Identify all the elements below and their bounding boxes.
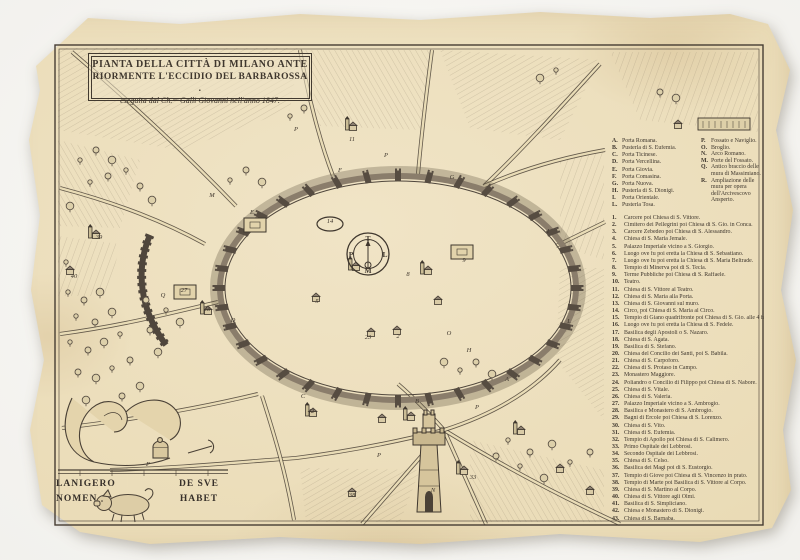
tower-merlon (399, 406, 401, 408)
building-roof (517, 426, 525, 430)
tree (554, 68, 558, 72)
map-label: 28 (204, 306, 211, 313)
legend-gate-entry: Q.Antico braccio delle mura di Massimian… (701, 164, 763, 177)
tree (92, 319, 98, 325)
legend-label: Chiesa di S. Protaso in Campo. (624, 365, 764, 372)
hatched-field (305, 50, 430, 130)
tower-merlon (395, 406, 397, 408)
legend-site-entry: 26.Chiesa di S. Valeria. (612, 394, 764, 401)
tree (119, 393, 125, 399)
legend-key: H. (612, 188, 622, 195)
legend-key: 38. (612, 480, 624, 487)
motto-right: DE SVE HABET (162, 477, 236, 507)
legend-label: Chiesa di S. Eufemia. (624, 430, 764, 437)
legend-label: Luogo ove fu poi eretta la Chiesa di S. … (624, 258, 764, 265)
legend-key: 19. (612, 344, 624, 351)
tree (75, 369, 81, 375)
legend-label: Antico braccio delle mura di Massimiano. (711, 164, 763, 177)
legend-key: L. (612, 202, 622, 209)
legend-key: 5. (612, 244, 624, 251)
legend-key: 39. (612, 487, 624, 494)
legend-site-entry: 5.Palazzo Imperiale vicino a S. Giorgio. (612, 244, 764, 251)
legend-key: 28. (612, 408, 624, 415)
tree (258, 178, 266, 186)
map-label: H (466, 347, 472, 354)
legend-site-entry: 41.Basilica di S. Simpliciano. (612, 501, 764, 508)
tree (88, 180, 92, 184)
map-label: L (566, 318, 571, 325)
farm-building (698, 118, 750, 130)
legend-key: 3. (612, 229, 624, 236)
legend-site-entry: 25.Chiesa di S. Vitale. (612, 387, 764, 394)
tree (540, 474, 548, 482)
legend-key: 2. (612, 222, 624, 229)
church-tower (404, 409, 408, 420)
tree (506, 438, 510, 442)
photo-backdrop: T M P L (0, 0, 800, 560)
tree (473, 359, 479, 365)
church-tower (89, 227, 93, 238)
legend-label: Porta Romana. (622, 138, 702, 145)
building-roof (92, 230, 100, 234)
legend-key: 30. (612, 423, 624, 430)
legend-key: 41. (612, 501, 624, 508)
legend-key: 23. (612, 372, 624, 379)
tree (110, 366, 114, 370)
church-tower (457, 463, 461, 474)
hatched-field (58, 140, 140, 228)
legend-key: F. (612, 174, 622, 181)
tree (587, 449, 593, 455)
wall-tower (215, 285, 226, 291)
legend-site-entry: 8.Tempio di Minerva poi di S. Tecla. (612, 265, 764, 272)
map-label: 40 (71, 273, 78, 280)
legend-label: Porte del Fossato. (711, 158, 763, 165)
tree (137, 183, 143, 189)
motto-left: LANIGERO NOMEN (56, 477, 142, 507)
tree (518, 464, 522, 468)
map-title-line2: RIORMENTE L'ECCIDIO DEL BARBAROSSA . (92, 71, 309, 95)
building-house (557, 468, 564, 473)
legend-label: Basilica di S. Stefano. (624, 344, 764, 351)
legend-key: 32. (612, 437, 624, 444)
building-roof (393, 326, 401, 330)
map-label: A (504, 376, 509, 383)
tree (100, 338, 108, 346)
legend-key: 10. (612, 279, 624, 286)
legend-key: 7. (612, 258, 624, 265)
legend-gate-entry: L.Pusterla Tosa. (612, 202, 702, 209)
legend-site-entry: 21.Chiesa di S. Carpoforo. (612, 358, 764, 365)
legend-label: Porta Comasina. (622, 174, 702, 181)
legend-gates-column1: A.Porta Romana.B.Pusterla di S. Eufemia.… (612, 138, 702, 210)
tree (136, 382, 144, 390)
legend-label: Luogo ove fu poi eretta la Chiesa di S. … (624, 251, 764, 258)
tree (74, 314, 78, 318)
legend-label: Teatro. (624, 279, 764, 286)
title-cartouche-inner: PIANTA DELLA CITTÀ DI MILANO ANTE RIORME… (91, 56, 310, 99)
motto-left-line2: NOMEN (56, 492, 142, 507)
building-roof (367, 328, 375, 332)
wall-tower (568, 265, 580, 272)
legend-label: Chiesa di S. Maria Jemale. (624, 236, 764, 243)
tree (127, 357, 133, 363)
legend-label: Arco Romano. (711, 151, 763, 158)
legend-site-entry: 13.Chiesa di S. Giovanni sul muro. (612, 301, 764, 308)
legend-site-entry: 2.Cimitero dei Pellegrini poi Chiesa di … (612, 222, 764, 229)
legend-label: Chiesa di S. Maria alla Porta. (624, 294, 764, 301)
tree (458, 368, 462, 372)
building-house (461, 470, 468, 475)
building-house (350, 126, 357, 131)
legend-label: Tempio di Apollo poi Chiesa di S. Calime… (624, 437, 764, 444)
legend-key: 6. (612, 251, 624, 258)
map-label: P (145, 461, 150, 468)
legend-label: Tempio di Minerva poi di S. Tecla. (624, 265, 764, 272)
legend-site-entry: 40.Chiesa di S. Vittore agli Olmi. (612, 494, 764, 501)
map-label: M (208, 192, 215, 199)
legend-gate-entry: B.Pusterla di S. Eufemia. (612, 145, 702, 152)
map-label: 11 (349, 136, 355, 143)
map-label: 27 (181, 287, 188, 294)
building-roof (424, 266, 432, 270)
legend-label: Fossato e Naviglio. (711, 138, 763, 145)
legend-gate-entry: N.Arco Romano. (701, 151, 763, 158)
legend-gate-entry: M.Porte del Fossato. (701, 158, 763, 165)
map-label: 8 (406, 271, 410, 278)
tower-merlon (215, 269, 217, 271)
map-label: E (249, 209, 254, 216)
legend-gate-entry: G.Porta Nuova. (612, 181, 702, 188)
map-title-line1: PIANTA DELLA CITTÀ DI MILANO ANTE (92, 59, 309, 71)
motto-right-line2: HABET (162, 492, 236, 507)
tower-merlon (582, 285, 584, 287)
legend-key: 27. (612, 401, 624, 408)
tree (154, 348, 162, 356)
tree (147, 327, 153, 333)
legend-key: Q. (701, 164, 711, 177)
legend-label: Luogo ove fu poi eretta la Chiesa di S. … (624, 322, 764, 329)
map-label: P (474, 404, 479, 411)
tower-merlon (213, 289, 215, 291)
legend-key: O. (701, 145, 711, 152)
title-cartouche: PIANTA DELLA CITTÀ DI MILANO ANTE RIORME… (88, 53, 312, 101)
legend-gate-entry: O.Broglio. (701, 145, 763, 152)
legend-label: Chiesa di S. Celso. (624, 458, 764, 465)
church-spire (513, 420, 518, 423)
church-tower (421, 263, 425, 274)
tree (164, 308, 168, 312)
tree (488, 370, 496, 378)
legend-site-entry: 11.Chiesa di S. Vittore al Teatro. (612, 287, 764, 294)
legend-site-entry: 6.Luogo ove fu poi eretta la Chiesa di S… (612, 251, 764, 258)
wall-tower (571, 285, 582, 291)
tree (288, 114, 292, 118)
legend-site-entry: 43.Chiesa di S. Barnaba. (612, 516, 764, 523)
legend-label: Secondo Ospitale dei Lebbrosi. (624, 451, 764, 458)
tree (143, 297, 149, 303)
legend-key: 33. (612, 444, 624, 451)
tree (657, 89, 663, 95)
legend-site-entry: 14.Circo, poi Chiesa di S. Maria al Circ… (612, 308, 764, 315)
tree (148, 196, 156, 204)
legend-label: Broglio. (711, 145, 763, 152)
legend-label: Primo Ospitale dei Lebbrosi. (624, 444, 764, 451)
legend-label: Chiesa di S. Carpoforo. (624, 358, 764, 365)
legend-key: 36. (612, 465, 624, 472)
building-house (587, 490, 594, 495)
walled-court (244, 218, 266, 232)
legend-key: E. (612, 167, 622, 174)
legend-key: M. (701, 158, 711, 165)
map-title-line3: eseguita dal Ch.ᵐᵒ Galli Giovanni nell'a… (92, 95, 309, 106)
map-label: O (447, 330, 452, 337)
wall-tower (395, 171, 401, 182)
tower-merlon (215, 265, 217, 267)
tree (548, 440, 556, 448)
tower-merlon (213, 285, 215, 287)
legend-label: Chiesa di S. Vitale. (624, 387, 764, 394)
wall-band (220, 176, 576, 400)
legend-label: Basilica di S. Simpliciano. (624, 501, 764, 508)
legend-label: Circo, poi Chiesa di S. Maria al Circo. (624, 308, 764, 315)
city-wall-ring (213, 169, 584, 408)
tree (568, 460, 572, 464)
legend-label: Ampliazione delle mura per opera dell'Ar… (711, 178, 763, 204)
legend-gate-entry: D.Porta Vercellina. (612, 159, 702, 166)
tree (92, 374, 100, 382)
tower-merlon (215, 309, 217, 311)
building-house (379, 418, 386, 423)
hatched-field (58, 236, 120, 296)
legend-site-entry: 30.Chiesa di S. Vito. (612, 423, 764, 430)
legend-site-entry: 37.Tempio di Giove poi Chiesa di S. Vinc… (612, 473, 764, 480)
legend-site-entry: 10.Teatro. (612, 279, 764, 286)
compass-west-label: P (349, 250, 354, 259)
legend-key: 37. (612, 473, 624, 480)
map-label: P (376, 452, 381, 459)
legend-site-entry: 29.Bagni di Ercole poi Chiesa di S. Lore… (612, 415, 764, 422)
legend-key: 12. (612, 294, 624, 301)
tree (66, 290, 70, 294)
building-house (425, 270, 432, 275)
building-house (518, 430, 525, 435)
legend-site-entry: 3.Carcere Zebedeo poi Chiesa di S. Aless… (612, 229, 764, 236)
tree (176, 318, 184, 326)
legend-site-entry: 9.Terme Pubbliche poi Chiesa di S. Raffa… (612, 272, 764, 279)
legend-label: Chiesa di S. Agata. (624, 337, 764, 344)
building-roof (312, 293, 320, 297)
legend-site-entry: 33.Primo Ospitale dei Lebbrosi. (612, 444, 764, 451)
legend-site-entry: 27.Palazzo Imperiale vicino a S. Ambrogi… (612, 401, 764, 408)
legend-label: Chiesa di S. Vittore al Teatro. (624, 287, 764, 294)
legend-site-entry: 20.Chiesa del Concilio dei Santi, poi S.… (612, 351, 764, 358)
legend-label: Carcere Zebedeo poi Chiesa di S. Alessan… (624, 229, 764, 236)
legend-key: G. (612, 181, 622, 188)
legend-label: Monastero Maggiore. (624, 372, 764, 379)
tree (228, 178, 232, 182)
tree (108, 308, 116, 316)
tree (536, 74, 544, 82)
motto-right-line1: DE SVE (162, 477, 236, 492)
legend-sites-list: 1.Carcere poi Chiesa di S. Vittore.2.Cim… (612, 215, 764, 523)
church-spire (305, 402, 310, 405)
legend-label: Chiesa di S. Giovanni sul muro. (624, 301, 764, 308)
legend-site-entry: 16.Luogo ove fu poi eretta la Chiesa di … (612, 322, 764, 329)
legend-gate-entry: H.Pusterla di S. Dionigi. (612, 188, 702, 195)
legend-gate-entry: F.Porta Comasina. (612, 174, 702, 181)
legend-key: 17. (612, 330, 624, 337)
legend-site-entry: 39.Chiesa di S. Martino al Corpo. (612, 487, 764, 494)
legend-label: Chiesa del Concilio dei Santi, poi S. Ba… (624, 351, 764, 358)
legend-key: 42. (612, 508, 624, 515)
legend-key: 22. (612, 365, 624, 372)
wall-tower (217, 304, 229, 311)
legend-key: 1. (612, 215, 624, 222)
legend-gate-entry: R.Ampliazione delle mura per opera dell'… (701, 178, 763, 204)
legend-label: Palazzo Imperiale vicino a S. Ambrogio. (624, 401, 764, 408)
legend-key: 8. (612, 265, 624, 272)
legend-key: R. (701, 178, 711, 204)
legend-site-entry: 15.Tempio di Giano quadrifronte poi Chie… (612, 315, 764, 322)
tree (672, 94, 680, 102)
map-label: B (415, 398, 419, 405)
legend-key: 14. (612, 308, 624, 315)
tree (124, 168, 128, 172)
tree (108, 156, 116, 164)
motto-left-line1: LANIGERO (56, 477, 142, 492)
tower-merlon (578, 309, 580, 311)
legend-key: 26. (612, 394, 624, 401)
legend-key: 4. (612, 236, 624, 243)
legend-site-entry: 23.Monastero Maggiore. (612, 372, 764, 379)
church-tower (514, 423, 518, 434)
legend-site-entry: 19.Basilica di S. Stefano. (612, 344, 764, 351)
hatched-field (440, 50, 600, 140)
legend-key: 40. (612, 494, 624, 501)
legend-label: Porta Orientale. (622, 195, 702, 202)
legend-site-entry: 22.Chiesa di S. Protaso in Campo. (612, 365, 764, 372)
map-label: 33 (469, 474, 477, 481)
tree (64, 260, 68, 264)
legend-site-entry: 36.Basilica dei Magi poi di S. Eustorgio… (612, 465, 764, 472)
legend-key: 18. (612, 337, 624, 344)
legend-key: 13. (612, 301, 624, 308)
legend-site-entry: 4.Chiesa di S. Maria Jemale. (612, 236, 764, 243)
map-label: N (430, 487, 436, 494)
legend-key: 21. (612, 358, 624, 365)
legend-label: Palazzo Imperiale vicino a S. Giorgio. (624, 244, 764, 251)
legend-label: Tempio di Giove poi Chiesa di S. Vincenz… (624, 473, 764, 480)
legend-key: 35. (612, 458, 624, 465)
legend-label: Chiesa di S. Barnaba. (624, 516, 764, 523)
church-spire (200, 300, 205, 303)
tree (81, 297, 87, 303)
legend-label: Chiesa di S. Vittore agli Olmi. (624, 494, 764, 501)
legend-key: N. (701, 151, 711, 158)
legend-gate-entry: A.Porta Romana. (612, 138, 702, 145)
legend-gate-entry: E.Porta Giovia. (612, 167, 702, 174)
wall-inner-line (225, 181, 571, 395)
ancient-wall-fragment (142, 235, 166, 345)
legend-label: Porta Nuova. (622, 181, 702, 188)
legend-label: Chiesa di S. Vito. (624, 423, 764, 430)
legend-label: Basilica e Monastero di S. Ambrogio. (624, 408, 764, 415)
legend-site-entry: 34.Secondo Ospitale dei Lebbrosi. (612, 451, 764, 458)
map-label: G (450, 174, 455, 181)
building-house (675, 124, 682, 129)
legend-site-entry: 17.Basilica degli Apostoli o S. Nazaro. (612, 330, 764, 337)
legend-label: Porta Giovia. (622, 167, 702, 174)
legend-key: 34. (612, 451, 624, 458)
tree (93, 147, 99, 153)
legend-site-entry: 24.Poliandro o Concilio di Filippo poi C… (612, 380, 764, 387)
legend-key: C. (612, 152, 622, 159)
legend-key: 24. (612, 380, 624, 387)
map-label: 14 (327, 218, 334, 225)
legend-label: Cimitero dei Pellegrini poi Chiesa di S.… (624, 222, 764, 229)
legend-key: 29. (612, 415, 624, 422)
legend-label: Terme Pubbliche poi Chiesa di S. Raffael… (624, 272, 764, 279)
map-label: 39 (95, 234, 103, 241)
legend-site-entry: 12.Chiesa di S. Maria alla Porta. (612, 294, 764, 301)
legend-key: 25. (612, 387, 624, 394)
legend-label: Carcere poi Chiesa di S. Vittore. (624, 215, 764, 222)
legend-key: B. (612, 145, 622, 152)
legend-key: I. (612, 195, 622, 202)
legend-site-entry: 18.Chiesa di S. Agata. (612, 337, 764, 344)
legend-site-entry: 28.Basilica e Monastero di S. Ambrogio. (612, 408, 764, 415)
legend-key: 31. (612, 430, 624, 437)
church-tower (346, 119, 350, 130)
tree (96, 288, 104, 296)
map-label: C (301, 393, 306, 400)
legend-key: 43. (612, 516, 624, 523)
tower-merlon (399, 169, 401, 171)
legend-key: 16. (612, 322, 624, 329)
legend-label: Chiesa di S. Valeria. (624, 394, 764, 401)
tree (78, 158, 82, 162)
compass-rose: T M P L (347, 233, 389, 275)
tree (301, 105, 307, 111)
legend-label: Porta Vercellina. (622, 159, 702, 166)
tree (493, 453, 499, 459)
legend-label: Pusterla di S. Eufemia. (622, 145, 702, 152)
legend-gate-entry: C.Porta Ticinese. (612, 152, 702, 159)
map-label: P (383, 152, 388, 159)
legend-site-entry: 35.Chiesa di S. Celso. (612, 458, 764, 465)
tower-merlon (579, 269, 581, 271)
tree (68, 340, 72, 344)
legend-gate-entry: I.Porta Orientale. (612, 195, 702, 202)
building-roof (378, 414, 386, 418)
building-roof (407, 412, 415, 416)
tree (85, 347, 91, 353)
wall-tower (395, 395, 401, 406)
tree (82, 396, 90, 404)
legend-key: 9. (612, 272, 624, 279)
tower-merlon (578, 265, 580, 267)
legend-site-entry: 42.Chiesa e Monastero di S. Dionigi. (612, 508, 764, 515)
legend-label: Chiesa e Monastero di S. Dionigi. (624, 508, 764, 515)
legend-label: Bagni di Ercole poi Chiesa di S. Lorenzo… (624, 415, 764, 422)
legend-gate-entry: P.Fossato e Naviglio. (701, 138, 763, 145)
wall-tower (567, 304, 579, 311)
legend-key: D. (612, 159, 622, 166)
building-house (408, 416, 415, 421)
legend-site-entry: 38.Tempio di Marte poi Basilica di S. Vi… (612, 480, 764, 487)
building-house (435, 300, 442, 305)
